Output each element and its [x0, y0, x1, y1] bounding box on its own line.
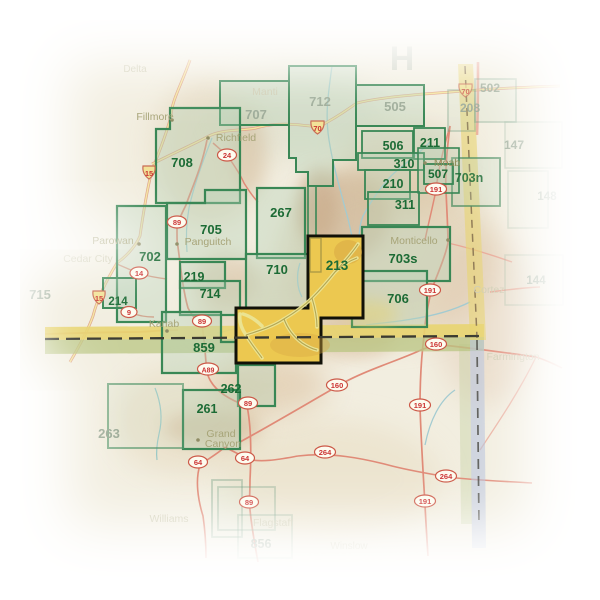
- svg-text:310: 310: [394, 157, 415, 171]
- svg-text:89: 89: [245, 498, 253, 507]
- svg-text:Delta: Delta: [123, 64, 147, 75]
- svg-text:707: 707: [245, 107, 267, 122]
- svg-text:Cortez: Cortez: [474, 284, 505, 296]
- svg-text:705: 705: [200, 222, 222, 237]
- svg-text:Manti: Manti: [252, 86, 278, 98]
- svg-text:160: 160: [430, 340, 443, 349]
- svg-text:148: 148: [537, 191, 557, 203]
- svg-text:311: 311: [395, 198, 415, 212]
- svg-text:H: H: [390, 40, 415, 78]
- svg-text:Fillmore: Fillmore: [136, 111, 173, 123]
- svg-text:64: 64: [194, 458, 203, 467]
- svg-text:264: 264: [440, 472, 453, 481]
- svg-text:859: 859: [193, 340, 215, 355]
- svg-text:70: 70: [313, 124, 321, 133]
- svg-text:Canyon: Canyon: [205, 438, 241, 450]
- svg-text:24: 24: [223, 151, 232, 160]
- svg-text:505: 505: [384, 99, 406, 114]
- svg-text:214: 214: [108, 296, 128, 308]
- svg-text:15: 15: [145, 169, 153, 178]
- svg-text:Kanab: Kanab: [149, 318, 180, 330]
- svg-text:703s: 703s: [389, 251, 418, 266]
- svg-text:Cedar City: Cedar City: [63, 253, 113, 265]
- svg-text:191: 191: [424, 286, 437, 295]
- svg-text:Farmington: Farmington: [486, 351, 539, 363]
- svg-text:715: 715: [29, 287, 51, 302]
- svg-text:507: 507: [428, 167, 448, 181]
- svg-text:191: 191: [430, 185, 443, 194]
- svg-text:702: 702: [139, 249, 161, 264]
- svg-text:208: 208: [460, 101, 480, 115]
- svg-text:506: 506: [383, 139, 404, 153]
- svg-text:191: 191: [419, 497, 432, 506]
- svg-text:210: 210: [383, 177, 404, 191]
- svg-text:267: 267: [270, 205, 292, 220]
- svg-text:706: 706: [387, 291, 409, 306]
- svg-text:Flagstaff: Flagstaff: [253, 517, 293, 529]
- svg-text:A89: A89: [202, 368, 215, 375]
- svg-text:264: 264: [319, 448, 332, 457]
- svg-text:710: 710: [266, 262, 288, 277]
- svg-text:89: 89: [173, 218, 181, 227]
- svg-text:Winslow: Winslow: [330, 541, 368, 552]
- svg-text:64: 64: [241, 454, 250, 463]
- svg-text:89: 89: [198, 317, 206, 326]
- svg-text:263: 263: [98, 426, 120, 441]
- svg-text:160: 160: [331, 381, 344, 390]
- svg-text:9: 9: [127, 308, 131, 317]
- svg-text:211: 211: [420, 136, 440, 150]
- svg-text:219: 219: [184, 270, 205, 284]
- svg-text:191: 191: [414, 401, 427, 410]
- svg-text:70: 70: [461, 87, 469, 96]
- svg-text:89: 89: [244, 399, 252, 408]
- svg-text:Williams: Williams: [149, 513, 188, 525]
- svg-text:213: 213: [326, 258, 349, 273]
- svg-text:261: 261: [197, 402, 218, 416]
- svg-text:502: 502: [480, 81, 500, 95]
- svg-text:147: 147: [504, 138, 524, 152]
- svg-text:262: 262: [221, 382, 242, 396]
- svg-text:714: 714: [200, 287, 221, 301]
- svg-text:Richfield: Richfield: [216, 132, 256, 144]
- svg-text:703n: 703n: [455, 171, 484, 185]
- svg-text:856: 856: [251, 537, 272, 551]
- svg-text:Parowan: Parowan: [92, 235, 134, 247]
- svg-text:708: 708: [171, 155, 193, 170]
- svg-text:Monticello: Monticello: [390, 235, 437, 247]
- svg-text:Panguitch: Panguitch: [185, 236, 232, 248]
- svg-text:712: 712: [309, 94, 331, 109]
- svg-text:14: 14: [135, 269, 144, 278]
- svg-text:15: 15: [95, 294, 103, 303]
- svg-text:144: 144: [526, 275, 546, 287]
